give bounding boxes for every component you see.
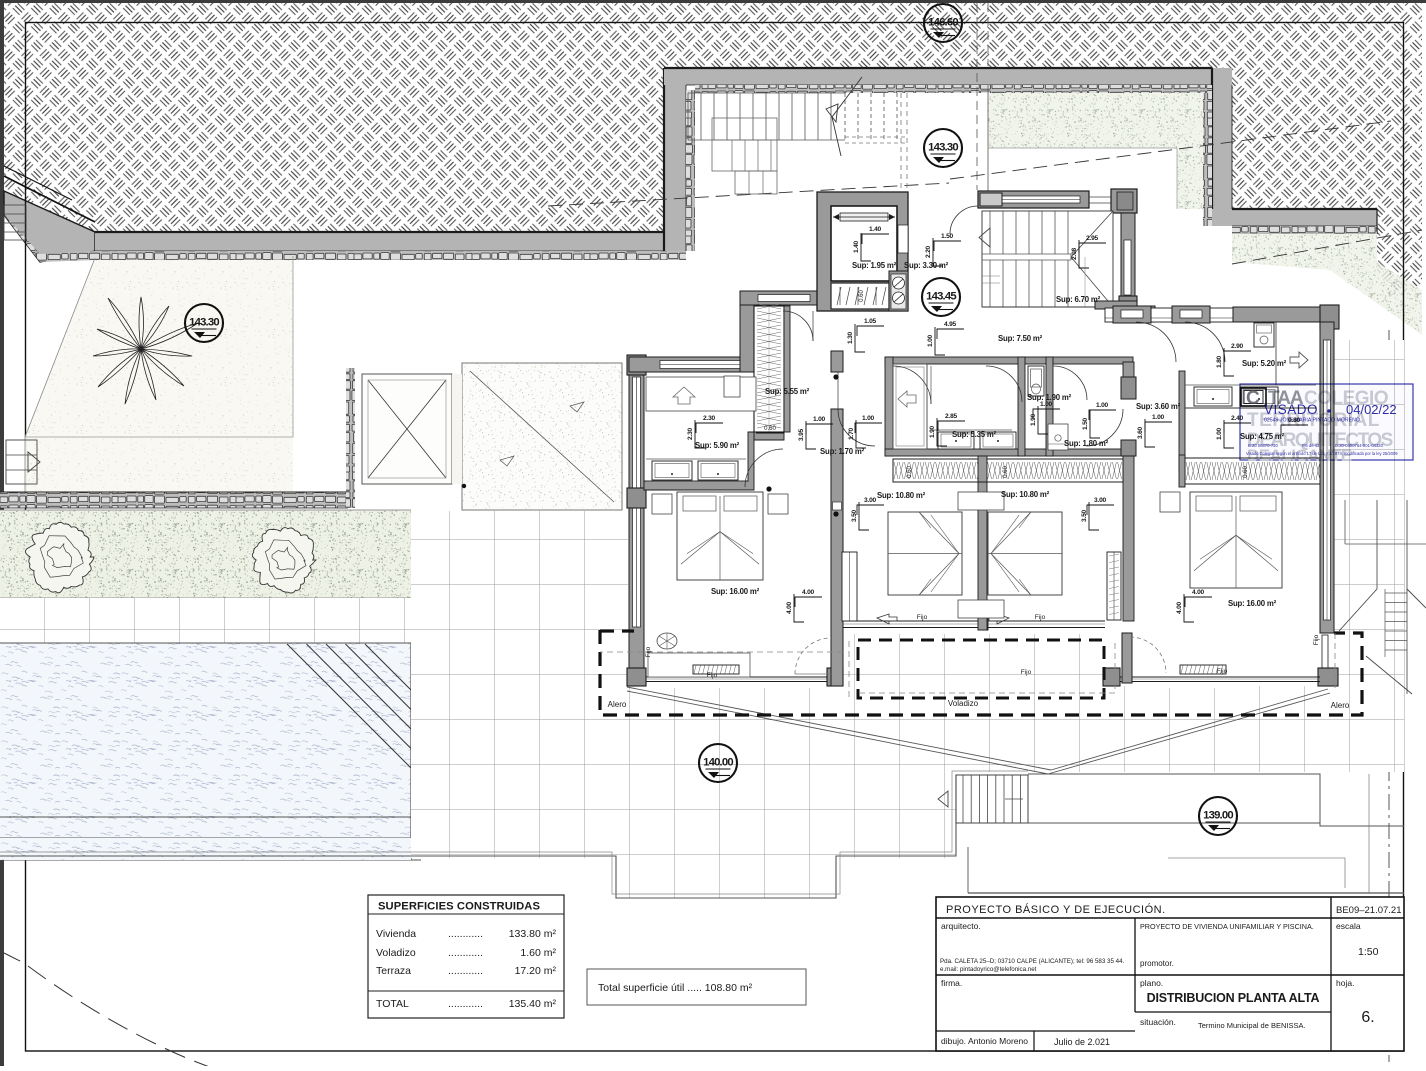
svg-text:PROYECTO DE VIVIENDA UNIFAM: PROYECTO DE VIVIENDA UNIFAMILIAR Y PISCI… xyxy=(1140,922,1314,931)
svg-text:C: C xyxy=(1246,388,1260,409)
svg-text:1:50: 1:50 xyxy=(1358,946,1379,958)
svg-text:1.00: 1.00 xyxy=(1096,402,1109,409)
svg-text:1.80: 1.80 xyxy=(1216,355,1223,368)
svg-text:Sup: 10.80 m²: Sup: 10.80 m² xyxy=(1001,490,1050,499)
svg-text:Sup: 1.95 m²: Sup: 1.95 m² xyxy=(852,261,897,270)
svg-text:3.95: 3.95 xyxy=(798,428,805,441)
svg-text:Fijo: Fijo xyxy=(1217,668,1228,675)
svg-text:143.30: 143.30 xyxy=(189,317,219,329)
svg-text:Sup: 16.00 m²: Sup: 16.00 m² xyxy=(711,587,760,596)
svg-text:dibujo. Antonio Moreno: dibujo. Antonio Moreno xyxy=(941,1036,1028,1046)
svg-text:2.30: 2.30 xyxy=(703,415,716,422)
svg-text:1.00: 1.00 xyxy=(813,416,826,423)
svg-text:146.60: 146.60 xyxy=(928,17,958,29)
svg-text:0.60: 0.60 xyxy=(764,426,776,432)
svg-text:D:20-0900784-001-04320: D:20-0900784-001-04320 xyxy=(1335,443,1384,448)
svg-text:1.90: 1.90 xyxy=(1030,413,1037,426)
svg-text:Terraza: Terraza xyxy=(376,965,411,977)
svg-text:133.80 m²: 133.80 m² xyxy=(509,928,557,940)
svg-text:1.50: 1.50 xyxy=(1082,417,1089,430)
svg-text:1.40: 1.40 xyxy=(869,226,882,233)
svg-text:2.30: 2.30 xyxy=(687,427,694,440)
svg-text:Sup: 16.00 m²: Sup: 16.00 m² xyxy=(1228,599,1277,608)
svg-text:0.60: 0.60 xyxy=(1243,466,1249,478)
svg-text:Fijo: Fijo xyxy=(645,646,652,657)
svg-text:04/02/22: 04/02/22 xyxy=(1346,402,1397,417)
svg-text:143.45: 143.45 xyxy=(926,291,956,303)
svg-text:1.00: 1.00 xyxy=(1040,401,1053,408)
svg-text:3.50: 3.50 xyxy=(1081,509,1088,522)
svg-text:17.20 m²: 17.20 m² xyxy=(515,965,557,977)
svg-text:135.40 m²: 135.40 m² xyxy=(509,998,557,1010)
svg-text:situación.: situación. xyxy=(1140,1017,1176,1027)
svg-text:SUPERFICIES CONSTRUIDAS: SUPERFICIES CONSTRUIDAS xyxy=(378,901,540,913)
svg-text:PROYECTO BÁSICO Y DE EJECU: PROYECTO BÁSICO Y DE EJECUCIÓN. xyxy=(946,903,1166,916)
svg-text:140.00: 140.00 xyxy=(703,757,733,769)
svg-text:Sup: 5.55 m²: Sup: 5.55 m² xyxy=(765,387,810,396)
svg-text:1.40: 1.40 xyxy=(853,240,860,253)
svg-text:............: ............ xyxy=(448,965,483,977)
svg-text:3.60: 3.60 xyxy=(1137,426,1144,439)
svg-text:P.6 de 43: P.6 de 43 xyxy=(1302,443,1320,448)
svg-text:............: ............ xyxy=(448,998,483,1010)
svg-text:4.00: 4.00 xyxy=(1176,601,1183,614)
svg-text:3.00: 3.00 xyxy=(1094,497,1107,504)
svg-text:Termino Municipal de BENISS: Termino Municipal de BENISSA. xyxy=(1198,1021,1306,1030)
svg-text:1.90: 1.90 xyxy=(929,425,936,438)
svg-text:1.50: 1.50 xyxy=(941,233,954,240)
svg-text:Pda. CALETA 25–D; 03710 CA: Pda. CALETA 25–D; 03710 CALPE (ALICANTE)… xyxy=(940,958,1125,965)
svg-text:Sup: 5.90 m²: Sup: 5.90 m² xyxy=(695,441,740,450)
svg-text:hoja.: hoja. xyxy=(1336,978,1354,988)
svg-text:Voladizo: Voladizo xyxy=(948,699,979,708)
svg-text:4.95: 4.95 xyxy=(944,321,957,328)
svg-text:............: ............ xyxy=(448,947,483,959)
svg-text:4.00: 4.00 xyxy=(802,589,815,596)
svg-text:02549 JOSE MARIA PINTADO MOREN: 02549 JOSE MARIA PINTADO MORENO xyxy=(1264,418,1360,424)
svg-text:Voladizo: Voladizo xyxy=(376,947,416,959)
svg-text:1.70: 1.70 xyxy=(848,427,855,440)
svg-text:arquitecto.: arquitecto. xyxy=(941,921,981,931)
svg-text:Fijo: Fijo xyxy=(917,614,928,621)
svg-text:Julio de 2.021: Julio de 2.021 xyxy=(1054,1037,1110,1047)
svg-text:143.30: 143.30 xyxy=(928,142,958,154)
svg-text:Fijo: Fijo xyxy=(1035,614,1046,621)
svg-text:1.30: 1.30 xyxy=(847,331,854,344)
svg-text:Sup: 5.20 m²: Sup: 5.20 m² xyxy=(1242,359,1287,368)
svg-text:2.20: 2.20 xyxy=(925,245,932,258)
svg-text:1.00: 1.00 xyxy=(862,415,875,422)
svg-text:0.60: 0.60 xyxy=(1003,466,1009,478)
svg-text:3.50: 3.50 xyxy=(851,509,858,522)
svg-text:TOTAL: TOTAL xyxy=(376,998,409,1010)
svg-text:............: ............ xyxy=(448,928,483,940)
svg-text:Fijo: Fijo xyxy=(1313,634,1320,645)
svg-text:DISTRIBUCION PLANTA ALTA: DISTRIBUCION PLANTA ALTA xyxy=(1147,991,1320,1005)
svg-text:e.mail: pintadoyrico@telefoni: e.mail: pintadoyrico@telefonica.net xyxy=(940,966,1037,973)
svg-text:4.00: 4.00 xyxy=(786,601,793,614)
svg-text:3.00: 3.00 xyxy=(864,497,877,504)
svg-text:2.95: 2.95 xyxy=(1086,235,1099,242)
svg-text:Total superficie útil ..... 10: Total superficie útil ..... 108.80 m² xyxy=(598,982,753,994)
svg-text:Alero: Alero xyxy=(608,700,627,709)
svg-text:Sup: 6.70 m²: Sup: 6.70 m² xyxy=(1056,295,1101,304)
svg-text:Visado Colegial según el artíc: Visado Colegial según el artículo 17 de … xyxy=(1246,451,1398,456)
svg-text:VISADO: VISADO xyxy=(1264,402,1318,417)
svg-text:2.90: 2.90 xyxy=(1231,343,1244,350)
svg-text:0.60: 0.60 xyxy=(859,290,865,302)
svg-text:139.00: 139.00 xyxy=(1203,810,1233,822)
svg-text:BE09–21.07.21: BE09–21.07.21 xyxy=(1336,905,1402,916)
svg-text:1.60 m²: 1.60 m² xyxy=(520,947,556,959)
svg-text:4.00: 4.00 xyxy=(1192,589,1205,596)
svg-text:Sup: 5.35 m²: Sup: 5.35 m² xyxy=(952,430,997,439)
svg-text:escala: escala xyxy=(1336,921,1361,931)
svg-text:Alero: Alero xyxy=(1331,701,1350,710)
svg-text:Sup: 3.30 m²: Sup: 3.30 m² xyxy=(904,261,949,270)
svg-text:Sup: 7.50 m²: Sup: 7.50 m² xyxy=(998,334,1043,343)
svg-text:Sup: 10.80 m²: Sup: 10.80 m² xyxy=(877,491,926,500)
svg-text:Fijo: Fijo xyxy=(1021,669,1032,676)
svg-text:1.05: 1.05 xyxy=(864,318,877,325)
svg-text:Sup: 3.60 m²: Sup: 3.60 m² xyxy=(1136,402,1181,411)
svg-text:promotor.: promotor. xyxy=(1140,959,1174,968)
svg-text:plano.: plano. xyxy=(1140,978,1163,988)
svg-text:1.00: 1.00 xyxy=(1152,414,1165,421)
svg-text:Vivienda: Vivienda xyxy=(376,928,416,940)
svg-text:firma.: firma. xyxy=(941,978,962,988)
svg-text:Sup: 1.80 m²: Sup: 1.80 m² xyxy=(1064,439,1109,448)
svg-text:2.85: 2.85 xyxy=(945,413,958,420)
svg-text:2.08: 2.08 xyxy=(1071,247,1078,260)
svg-text:B:20 00370-730: B:20 00370-730 xyxy=(1248,443,1278,448)
svg-text:0.60: 0.60 xyxy=(907,466,913,478)
svg-text:1.00: 1.00 xyxy=(927,334,934,347)
svg-text:6.: 6. xyxy=(1361,1009,1374,1026)
svg-text:1.00: 1.00 xyxy=(1216,427,1223,440)
svg-text:Fijo: Fijo xyxy=(707,672,718,679)
